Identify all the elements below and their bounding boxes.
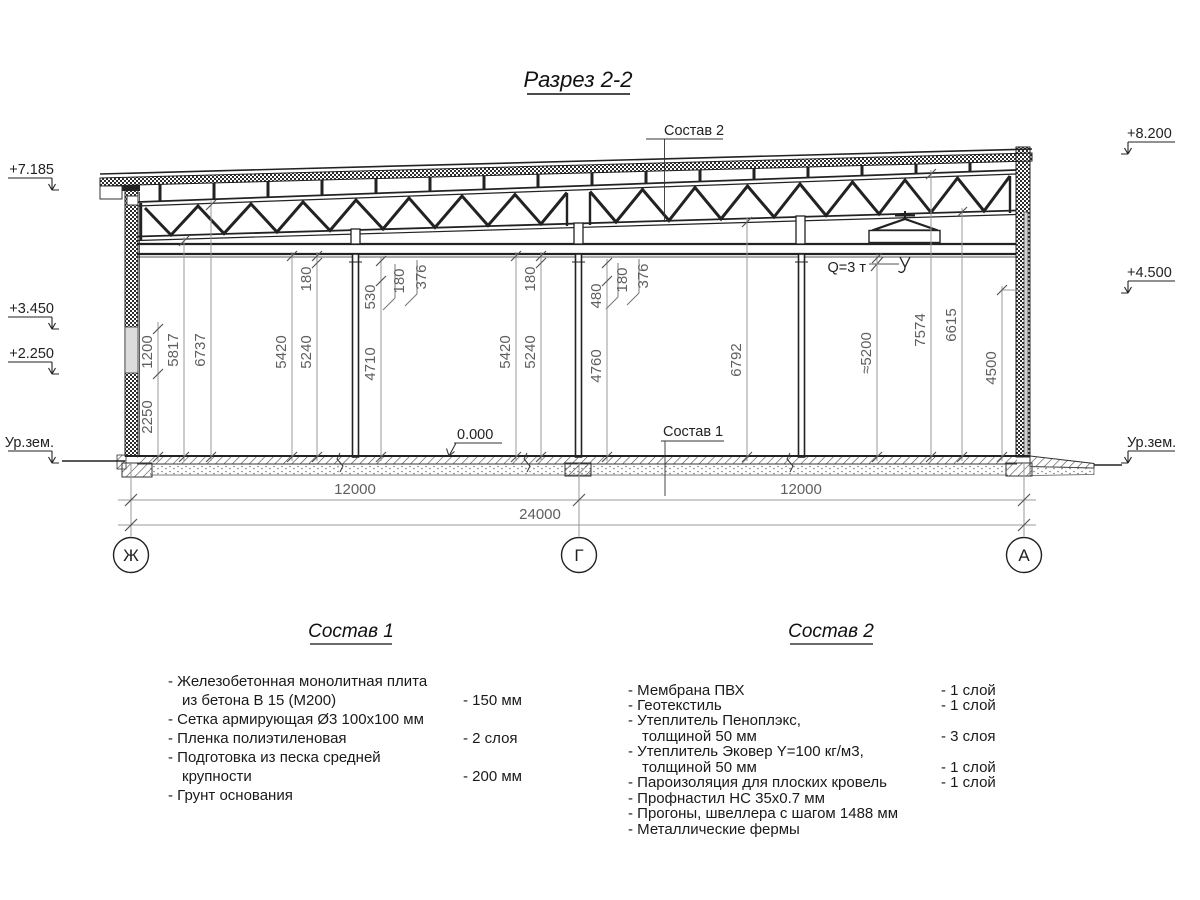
dim-376-b: 376 [635, 263, 652, 288]
legend2-row9-name: - Металлические фермы [628, 821, 800, 838]
left-wall-cap [122, 185, 140, 191]
dim-530: 530 [362, 284, 379, 309]
dim-2250: 2250 [139, 400, 156, 433]
legend1-row0-name: - Железобетонная монолитная плита [168, 673, 428, 690]
dim-6792: 6792 [728, 343, 745, 376]
drawing-sheet: Разрез 2-2 [0, 0, 1200, 900]
legend1-row4-name: - Подготовка из песка средней [168, 749, 381, 766]
dim-376-a: 376 [413, 264, 430, 289]
dim-6737: 6737 [192, 333, 209, 366]
elev-2250: +2.250 [9, 346, 54, 362]
axis-label-g: Г [574, 546, 583, 565]
footing-left [122, 463, 152, 477]
dim-4760: 4760 [588, 349, 605, 382]
legend2-row4-name: - Утеплитель Эковер Y=100 кг/м3, [628, 743, 864, 760]
left-wall [117, 185, 140, 469]
callout-sostav1-label: Состав 1 [663, 424, 723, 440]
dim-180-d: 180 [614, 267, 631, 292]
legend2-row6-value: - 1 слой [941, 774, 996, 791]
legend1-row3-value: - 2 слоя [463, 730, 518, 747]
dim-12000-left: 12000 [334, 481, 376, 498]
column-axis-g [576, 254, 582, 457]
dim-12000-right: 12000 [780, 481, 822, 498]
elev-8200: +8.200 [1127, 126, 1172, 142]
dim-5420-b: 5420 [497, 335, 514, 368]
legend1-row3-name: - Пленка полиэтиленовая [168, 730, 347, 747]
dim-480: 480 [588, 283, 605, 308]
legend1-row1-value: - 150 мм [463, 692, 522, 709]
crane-capacity-label: Q=3 т [828, 260, 867, 276]
dim-180-c: 180 [522, 266, 539, 291]
section-drawing: Разрез 2-2 [0, 0, 1200, 900]
legend1-header: Состав 1 [308, 621, 394, 642]
legend1-row2-name: - Сетка армирующая Ø3 100х100 мм [168, 711, 424, 728]
right-wall [1016, 147, 1030, 457]
eave-box [100, 186, 122, 199]
post-above-beam-1 [351, 229, 360, 244]
dim-4710: 4710 [362, 347, 379, 380]
ramp-bed [1030, 467, 1094, 476]
truss-seat [127, 196, 138, 205]
legend2-row8-name: - Прогоны, швеллера с шагом 1488 мм [628, 805, 898, 822]
elev-7185: +7.185 [9, 162, 54, 178]
dim-5200: ≈5200 [858, 332, 875, 374]
dim-6615: 6615 [943, 308, 960, 341]
callout-zero-level: 0.000 [447, 427, 503, 456]
page-title: Разрез 2-2 [523, 67, 632, 94]
legend1-row5-name: крупности [182, 768, 252, 785]
legend2-row6-name: - Пароизоляция для плоских кровель [628, 774, 887, 791]
footing-right [1006, 463, 1032, 476]
dim-5420-a: 5420 [273, 335, 290, 368]
legend1-row6-name: - Грунт основания [168, 787, 293, 804]
column-3 [799, 254, 805, 457]
dim-24000: 24000 [519, 506, 561, 523]
post-above-beam-2 [574, 223, 583, 244]
bottom-dimensions: 12000 12000 24000 Ж Г А [114, 463, 1042, 573]
zero-level-arrow [447, 443, 457, 456]
elevation-marks-left: +7.185 +3.450 +2.250 Ур.зем. [5, 162, 59, 463]
elevation-marks-right: +8.200 +4.500 Ур.зем. [1121, 126, 1176, 463]
hoist-hook [900, 257, 910, 267]
legend2-row3-value: - 3 слоя [941, 728, 996, 745]
post-above-beam-3 [796, 216, 805, 244]
elev-ground-left: Ур.зем. [5, 435, 54, 451]
legend2-row2-name: - Утеплитель Пеноплэкс, [628, 712, 801, 729]
axis-label-zh: Ж [123, 546, 139, 565]
legend-sostav2: Состав 2 - Мембрана ПВХ - 1 слой - Геоте… [628, 621, 996, 838]
elev-ground-right: Ур.зем. [1127, 435, 1176, 451]
hoist-body [869, 231, 940, 243]
ramp [1030, 456, 1094, 468]
column-1 [353, 254, 359, 457]
axis-label-a: А [1018, 546, 1030, 565]
crane-callout: Q=3 т [828, 257, 899, 276]
dim-5240-a: 5240 [298, 335, 315, 368]
dim-180-a: 180 [298, 266, 315, 291]
elev-3450: +3.450 [9, 301, 54, 317]
footing-mid [565, 463, 591, 476]
legend-sostav1: Состав 1 - Железобетонная монолитная пли… [168, 621, 522, 804]
columns [349, 216, 808, 457]
zero-level-label: 0.000 [457, 427, 493, 443]
monorail-hoist [869, 211, 940, 272]
right-wall-lining [1024, 212, 1028, 457]
legend2-row1-value: - 1 слой [941, 697, 996, 714]
dim-180-b: 180 [391, 268, 408, 293]
dim-5240-b: 5240 [522, 335, 539, 368]
left-wall-window-band [125, 327, 138, 373]
callout-sostav2-label: Состав 2 [664, 123, 724, 139]
dim-1200: 1200 [139, 335, 156, 368]
legend1-row5-value: - 200 мм [463, 768, 522, 785]
dim-4500: 4500 [983, 351, 1000, 384]
section-title-text: Разрез 2-2 [523, 67, 632, 92]
dim-7574: 7574 [912, 313, 929, 346]
legend2-header: Состав 2 [788, 621, 874, 642]
elev-4500: +4.500 [1127, 265, 1172, 281]
dim-5817: 5817 [165, 333, 182, 366]
legend1-row1-name: из бетона В 15 (М200) [182, 692, 336, 709]
